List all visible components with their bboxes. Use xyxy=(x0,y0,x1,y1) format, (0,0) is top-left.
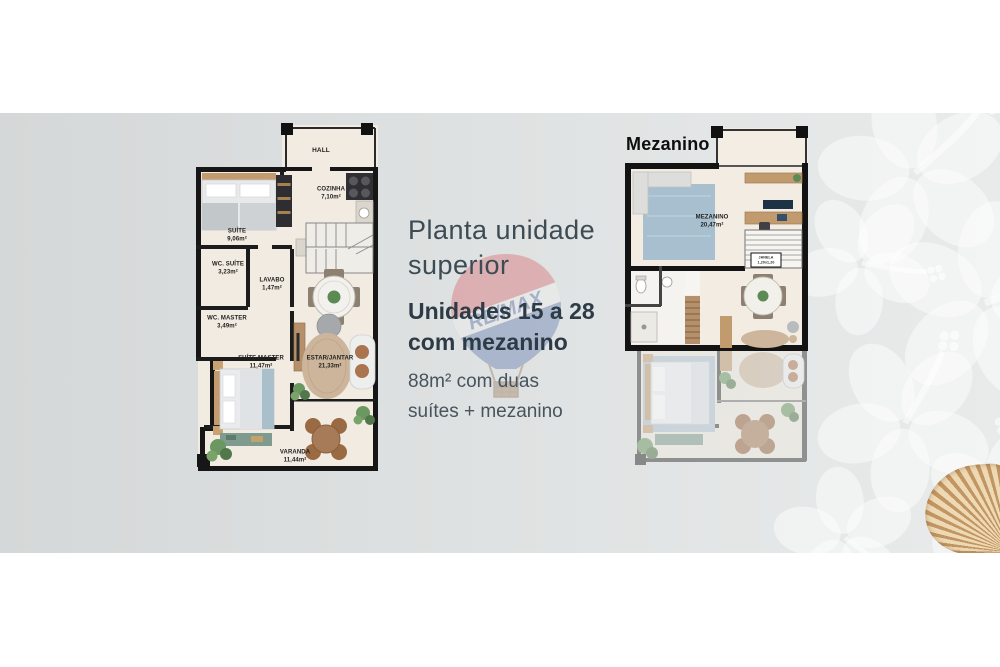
room-label-varanda: VARANDA 11,44m² xyxy=(280,450,310,465)
room-label-mezanino: MEZANINO 20,47m² xyxy=(696,215,729,230)
plan-title-line2: superior xyxy=(408,248,643,283)
marketing-floorplan-sheet: RE/MAX Planta unidade superior Unidades … xyxy=(0,0,1000,667)
master-suite-bed xyxy=(213,361,274,446)
plan-title-line1: Planta unidade xyxy=(408,213,643,248)
room-label-suite-master: SUÍTE MASTER 11,47m² xyxy=(238,356,284,371)
room-label-wc-master: WC. MASTER 3,49m² xyxy=(207,316,247,331)
room-label-suite: SUÍTE 9,06m² xyxy=(227,229,247,244)
room-label-wc-suite: WC. SUÍTE 3,23m² xyxy=(212,262,244,277)
units-line1: Unidades 15 a 28 xyxy=(408,296,643,327)
room-label-lavabo: LAVABO 1,47m² xyxy=(259,278,284,293)
detail-line2: suítes + mezanino xyxy=(408,397,643,427)
unit-floor-plan: HALL COZINHA 7,10m² SUÍTE 9,06m² WC. SUÍ… xyxy=(196,123,382,473)
unit-floor-plan-drawing xyxy=(196,123,382,473)
room-label-janela: JANELA 1,20x1,20 xyxy=(758,255,775,264)
suite-bed xyxy=(202,173,276,230)
mezzanine-bathroom xyxy=(625,266,700,344)
room-label-cozinha: COZINHA 7,10m² xyxy=(317,187,345,202)
wardrobe xyxy=(276,175,292,227)
faded-lower-floor xyxy=(635,351,807,465)
mezzanine-plan-drawing xyxy=(625,126,811,474)
detail-line1: 88m² com duas xyxy=(408,367,643,397)
units-line2: com mezanino xyxy=(408,327,643,358)
stairs xyxy=(306,223,373,273)
description-block: Planta unidade superior Unidades 15 a 28… xyxy=(408,213,643,427)
room-label-hall: HALL xyxy=(312,147,330,155)
mezzanine-floor-plan: Mezanino xyxy=(625,126,811,474)
room-label-estar-jantar: ESTAR/JANTAR 21,33m² xyxy=(307,356,354,371)
